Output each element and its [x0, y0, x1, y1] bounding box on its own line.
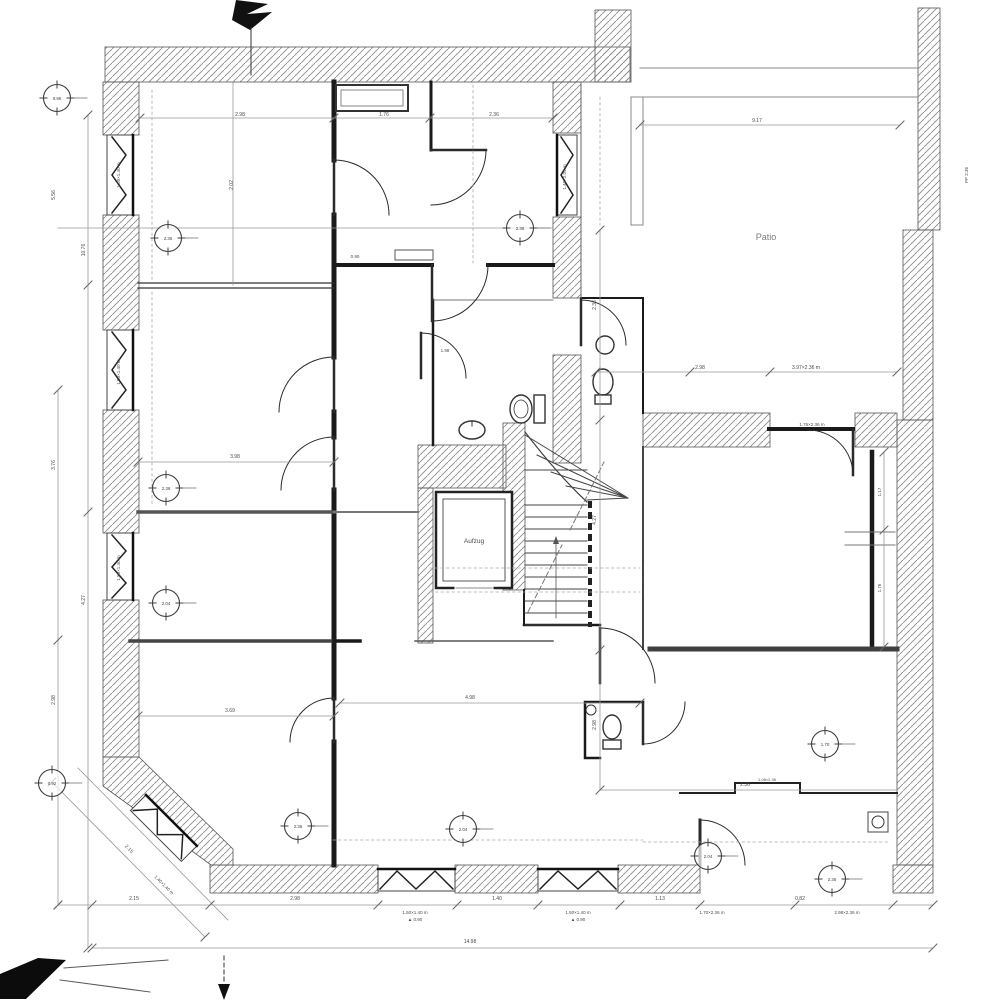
annotation-text: 2.02 [229, 180, 235, 190]
level-marker: 2.36 [149, 471, 196, 505]
door-1 [334, 160, 389, 215]
annotation-text: 1.76×2.36 m [799, 422, 824, 427]
annotation-text: 14.98 [464, 939, 477, 945]
annotation-text: 1.50×1.40 m [402, 910, 427, 915]
left-room-partition [138, 283, 334, 288]
level-marker: 0.92 [35, 766, 82, 800]
wall-bottom-1 [210, 865, 378, 893]
basin-wc-lower [586, 705, 596, 715]
annotation-text: 0.82 [795, 896, 805, 902]
annotation-text: 0.90 [351, 254, 360, 259]
annotation-text: 1.40×2.04 m [562, 164, 567, 189]
wall-left-pier-1 [103, 82, 139, 135]
level-marker: 2.04 [446, 812, 493, 846]
annotation-text: 2.15 [129, 896, 139, 902]
level-marker: 2.04 [149, 586, 196, 620]
annotation-text: 1.50×1.40 m [116, 555, 121, 580]
level-marker-value: 2.36 [516, 226, 525, 231]
toilet-wc-lower [603, 715, 621, 749]
wc-upper-walls [581, 298, 643, 413]
annotation-text: 1.70×2.36 m [699, 910, 724, 915]
annotation-text: 2.98 [51, 695, 57, 705]
annotation-text: 2.36 [740, 782, 750, 788]
closet [336, 85, 408, 111]
stair-arrow [553, 536, 559, 544]
annotation-text: 2.98 [235, 112, 245, 118]
annotation-text: 1.40 [492, 896, 502, 902]
lowerright-wall-notch [680, 783, 897, 793]
door-6 [431, 150, 486, 205]
annotation-text: 9.17 [752, 118, 762, 124]
wall-stub-top-right [595, 10, 631, 82]
annotation-text: 4.98 [465, 695, 475, 701]
wall-top [105, 47, 630, 82]
annotation-text: 2.98 [592, 720, 598, 730]
toilet-wc-upper [593, 369, 613, 404]
door-3 [281, 437, 334, 490]
door-stair [600, 628, 655, 683]
wall-left-pier-2 [103, 215, 139, 330]
annotation-text: 2.15 [123, 844, 134, 855]
annotation-text: 1.50×1.40 m [116, 359, 121, 384]
level-markers: 0.962.362.362.362.040.922.362.041.702.36… [35, 81, 862, 896]
annotation-text: 2.98 [290, 896, 300, 902]
patio-boundary [631, 68, 918, 225]
door-wc-upper [581, 300, 626, 345]
level-marker: 2.36 [151, 221, 198, 255]
wall-bigroom-north-left [643, 413, 770, 447]
level-marker-value: 0.92 [48, 781, 57, 786]
level-marker-value: 2.36 [162, 486, 171, 491]
annotation-text: Aufzug [464, 538, 485, 545]
door-2 [279, 357, 334, 412]
annotation-text: 1.13 [655, 896, 665, 902]
annotation-text: 1.50×1.40 m [116, 162, 121, 187]
level-marker: 2.36 [281, 809, 328, 843]
annotation-text: 2.36 [592, 300, 598, 310]
door-bigroom [808, 430, 853, 475]
level-marker: 2.36 [815, 862, 862, 896]
floor-plan-sheet: 0.962.362.362.362.040.922.362.041.702.36… [0, 0, 1000, 1000]
level-marker-value: 2.36 [294, 824, 303, 829]
window-bottom-1 [378, 869, 455, 891]
annotation-text: 3.97×2.36 m [792, 365, 820, 371]
level-marker-value: 2.36 [164, 236, 173, 241]
annotation-text: 2.98×2.36 m [834, 910, 859, 915]
window-bottom-2 [538, 869, 618, 891]
annotation-text: 5.56 [51, 190, 57, 200]
basin-wc-upper [596, 336, 614, 354]
annotation-text: 3.69 [225, 708, 235, 714]
wall-right-mid-pier-low [553, 355, 581, 463]
level-marker: 2.36 [503, 211, 550, 245]
wall-bottom-2 [455, 865, 538, 893]
wall-elevator-north [418, 445, 506, 488]
door-bath [421, 333, 466, 378]
annotation-text: 10.76 [81, 244, 87, 257]
level-marker-value: 2.04 [459, 827, 468, 832]
annotation-text: 2.98 [695, 365, 705, 371]
wall-left-pier-4 [103, 600, 139, 757]
annotation-text: 1.17 [877, 487, 882, 496]
door-4 [290, 698, 334, 742]
wall-bigroom-north-right [855, 413, 897, 447]
wall-right-main [897, 420, 933, 865]
wall-bottom-3 [618, 865, 700, 893]
toilet-bath [510, 395, 545, 423]
wall-elevator-west [418, 488, 433, 643]
annotation-text: 3.98 [230, 454, 240, 460]
level-marker: 0.96 [40, 81, 87, 115]
annotation-text: 1.98 [441, 348, 450, 353]
annotation-text: 1.76 [877, 583, 882, 592]
annotation-text: 1.08×2.36 [758, 777, 777, 782]
annotation-text: 1.76 [379, 112, 389, 118]
annotation-text: PP 2.36 [964, 167, 969, 183]
level-marker-value: 2.04 [704, 854, 713, 859]
annotation-text: 1.40×1.40 m [153, 874, 174, 895]
annotation-text: 1.50×1.40 m [565, 910, 590, 915]
door-wc-lower [643, 702, 685, 744]
level-marker-value: 2.04 [162, 601, 171, 606]
sink-bath [459, 421, 485, 439]
wall-right-upper [903, 230, 933, 420]
door-5 [432, 265, 488, 321]
shower-lower-right [868, 812, 888, 832]
corner-artifacts [0, 956, 230, 1000]
wall-right-top [918, 8, 940, 230]
annotation-text: Patio [756, 232, 777, 242]
wall-right-mid-top [553, 82, 581, 133]
annotation-text: 4.27 [81, 595, 87, 605]
annotation-text: ▲ 0.90 [571, 917, 586, 922]
level-marker-value: 0.96 [53, 96, 62, 101]
level-marker-value: 1.70 [821, 742, 830, 747]
level-marker: 1.70 [808, 727, 855, 761]
window-right-mid [557, 135, 577, 215]
annotation-text: ▲ 0.90 [408, 917, 423, 922]
wall-right-mid-pier [553, 217, 581, 298]
annotation-text: 3.76 [51, 460, 57, 470]
level-marker-value: 2.36 [828, 877, 837, 882]
annotation-text: 4.27 [592, 515, 598, 525]
wall-left-pier-3 [103, 410, 139, 533]
shelf [395, 250, 433, 260]
annotation-text: 2.36 [489, 112, 499, 118]
floor-plan-drawing: 0.962.362.362.362.040.922.362.041.702.36… [0, 0, 1000, 1000]
wall-right-bottom-pier [893, 865, 933, 893]
